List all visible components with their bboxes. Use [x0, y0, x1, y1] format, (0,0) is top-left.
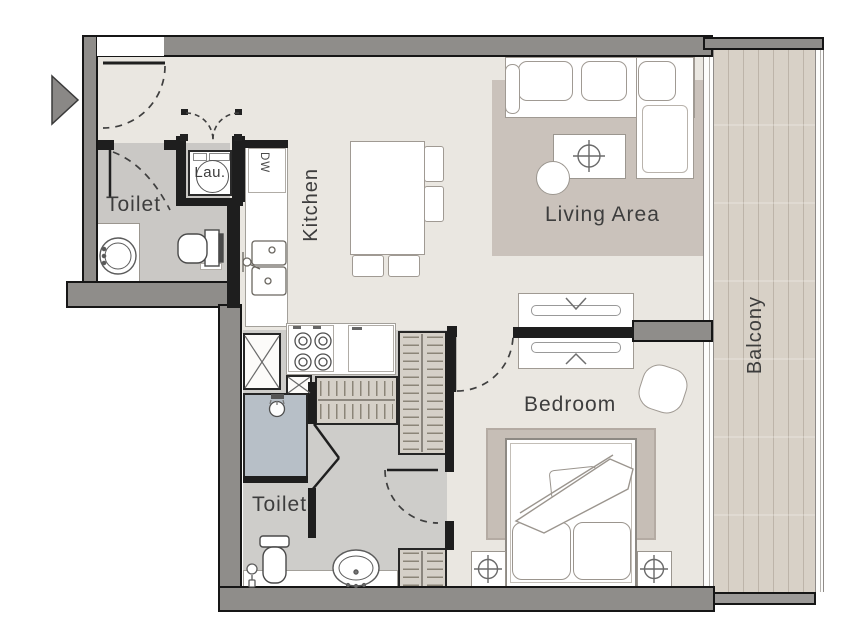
floor-plan: Toilet Lau. DW Kitchen Living Area Balco… [0, 0, 866, 633]
oval-sink-icon [333, 550, 379, 587]
shower-head-icon [270, 394, 285, 417]
entry-door-swing [103, 66, 165, 128]
bed-throw-blanket [516, 455, 633, 533]
chevron-down-icon [566, 298, 586, 309]
double-door-leaf [312, 458, 339, 490]
laundry-bifold-swing [186, 113, 213, 140]
room-label-toilet-bottom: Toilet [252, 493, 307, 517]
bedroom-door-swing [457, 335, 513, 391]
chevron-up-icon [566, 354, 586, 364]
double-door-leaf [314, 424, 339, 458]
laundry-bifold-swing [213, 113, 239, 140]
room-label-toilet-top: Toilet [106, 193, 161, 217]
symbol-overlay [0, 0, 866, 633]
table-lamp-icon [474, 555, 502, 583]
table-lamp-icon [640, 555, 668, 583]
ceiling-lamp-icon [573, 140, 605, 172]
stove-burners-icon [293, 326, 362, 370]
toilet-brush-icon [247, 564, 257, 587]
toilet-icon [260, 536, 289, 583]
room-label-living: Living Area [545, 203, 660, 227]
entry-arrow-icon [52, 76, 78, 124]
room-label-laundry: Lau. [188, 164, 232, 181]
room-label-balcony: Balcony [744, 296, 767, 374]
room-label-kitchen: Kitchen [300, 168, 323, 242]
appliance-label-dishwasher: DW [258, 152, 270, 173]
room-label-bedroom: Bedroom [524, 393, 616, 417]
sink-basin-icon [100, 238, 136, 274]
toilet-icon [178, 230, 223, 266]
hall-door-swing [385, 470, 438, 523]
kitchen-sink-icon [243, 241, 286, 295]
